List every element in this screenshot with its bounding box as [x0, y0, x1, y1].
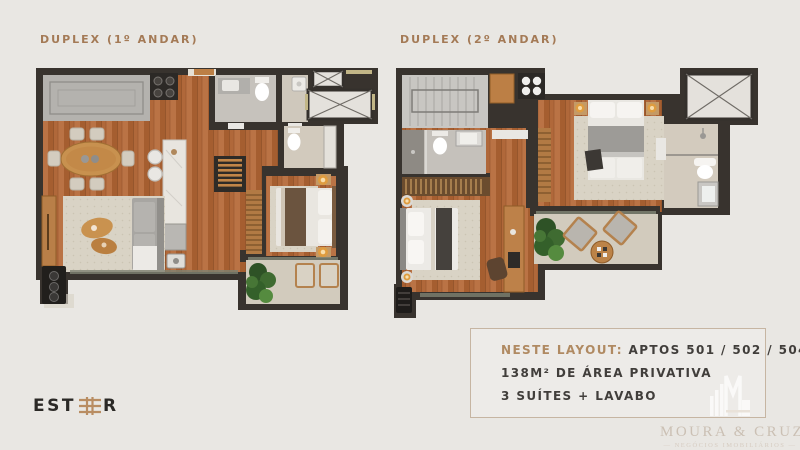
- logo-text-start: EST: [33, 396, 76, 416]
- info-highlight: NESTE LAYOUT:: [501, 343, 623, 357]
- info-line-rooms: 3 SUÍTES + LAVABO: [501, 389, 765, 403]
- terrace: [534, 211, 658, 264]
- hall-door-opening: [492, 130, 528, 139]
- ac-unit: [396, 287, 412, 313]
- bathroom-master: [656, 124, 718, 208]
- bathroom-door-opening: [656, 138, 666, 160]
- stairwell: [402, 75, 488, 128]
- terrace-table: [591, 241, 613, 263]
- esther-he-monogram-icon: [79, 397, 102, 415]
- info-line-apartments: NESTE LAYOUT: APTOS 501 / 502 / 504 / 50…: [501, 343, 765, 357]
- info-apartments: APTOS 501 / 502 / 504 / 505: [629, 343, 800, 357]
- bedroom2-window-threshold: [420, 293, 510, 297]
- logo-text-end: R: [103, 396, 119, 416]
- elevator-shaft-2: [686, 74, 752, 119]
- closet-rack: [402, 177, 490, 196]
- poster-canvas: DUPLEX (1º ANDAR) DUPLEX (2º ANDAR): [0, 0, 800, 450]
- bedroom-suite2: [400, 195, 480, 283]
- info-box: NESTE LAYOUT: APTOS 501 / 502 / 504 / 50…: [470, 328, 766, 418]
- stair-railing: [538, 128, 551, 202]
- esther-logo: EST R: [33, 396, 119, 416]
- grill-cooktop: [518, 73, 545, 99]
- bathroom-suite2: [402, 130, 486, 174]
- hall-cabinet: [490, 74, 514, 103]
- info-line-area: 138M² DE ÁREA PRIVATIVA: [501, 366, 765, 380]
